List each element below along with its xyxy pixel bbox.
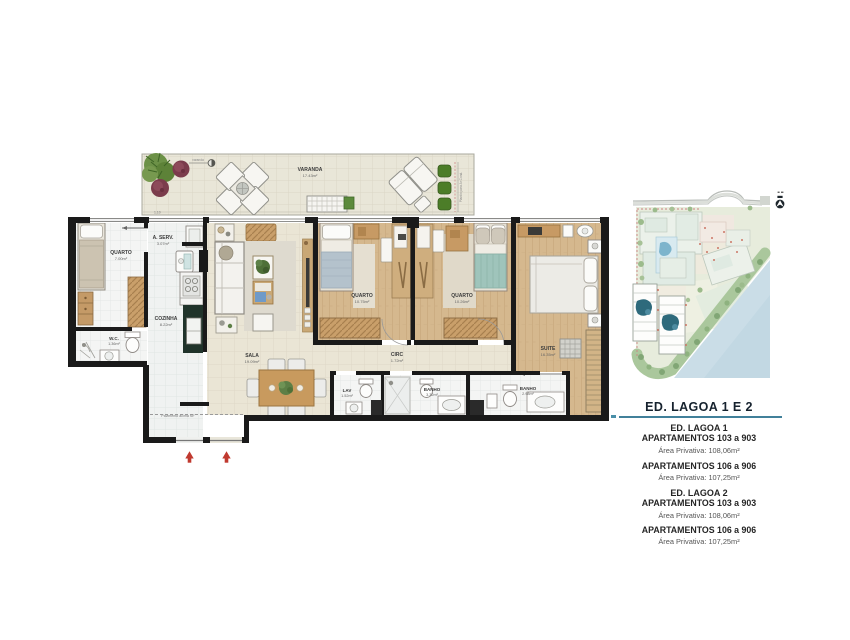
- svg-text:1.52m²: 1.52m²: [341, 394, 354, 398]
- svg-text:Plantio para Ar Cond.: Plantio para Ar Cond.: [459, 172, 463, 202]
- svg-text:varanda: varanda: [192, 158, 204, 162]
- svg-text:BANHO: BANHO: [520, 386, 537, 391]
- svg-text:3.07m²: 3.07m²: [157, 241, 170, 246]
- svg-text:7.00m²: 7.00m²: [115, 256, 128, 261]
- svg-text:19.09m²: 19.09m²: [245, 359, 260, 364]
- svg-text:1.72m²: 1.72m²: [391, 358, 404, 363]
- svg-text:1.36m²: 1.36m²: [108, 342, 121, 346]
- svg-text:16.35m²: 16.35m²: [541, 352, 556, 357]
- svg-text:2.98m²: 2.98m²: [522, 392, 535, 396]
- svg-text:8.22m²: 8.22m²: [160, 322, 173, 327]
- svg-text:LAV: LAV: [343, 388, 352, 393]
- svg-text:3.32m²: 3.32m²: [426, 393, 439, 397]
- svg-text:17.43m²: 17.43m²: [303, 173, 318, 178]
- svg-text:10.75m²: 10.75m²: [355, 299, 370, 304]
- svg-text:BANHO: BANHO: [424, 387, 441, 392]
- svg-text:W.C.: W.C.: [109, 336, 119, 341]
- svg-text:1.10: 1.10: [154, 211, 161, 215]
- svg-text:10.26m²: 10.26m²: [455, 299, 470, 304]
